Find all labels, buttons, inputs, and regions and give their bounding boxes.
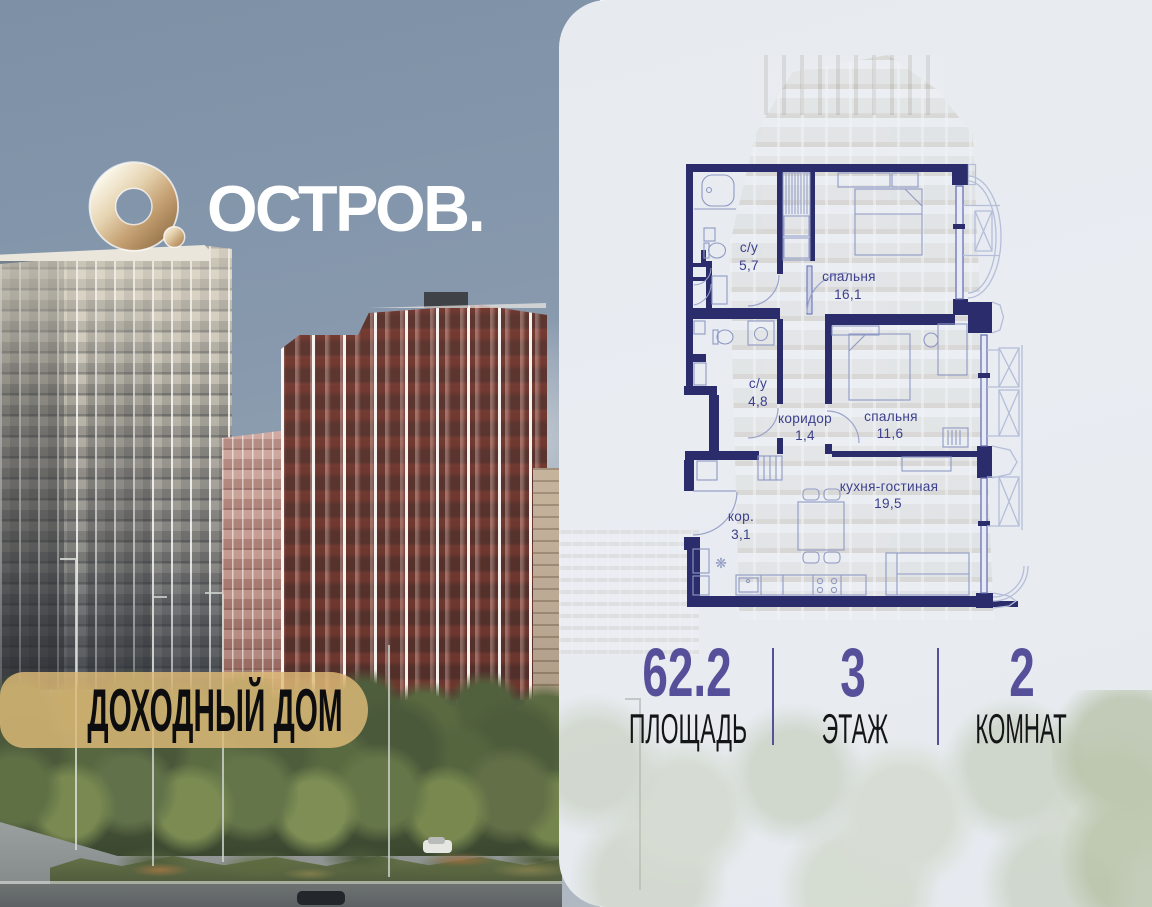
svg-text:16,1: 16,1: [834, 287, 862, 302]
svg-text:19,5: 19,5: [874, 496, 902, 511]
svg-text:с/у: с/у: [749, 376, 767, 391]
svg-text:кор.: кор.: [728, 509, 754, 524]
svg-text:❋: ❋: [715, 555, 727, 571]
svg-text:5,7: 5,7: [739, 258, 759, 273]
svg-text:с/у: с/у: [740, 240, 758, 255]
svg-text:3,1: 3,1: [731, 527, 751, 542]
svg-text:1,4: 1,4: [795, 428, 815, 443]
svg-text:11,6: 11,6: [877, 426, 904, 441]
svg-text:4,8: 4,8: [748, 394, 768, 409]
svg-text:спальня: спальня: [822, 269, 876, 284]
svg-text:кухня-гостиная: кухня-гостиная: [840, 479, 939, 494]
svg-text:коридор: коридор: [778, 411, 832, 426]
svg-text:спальня: спальня: [864, 409, 918, 424]
